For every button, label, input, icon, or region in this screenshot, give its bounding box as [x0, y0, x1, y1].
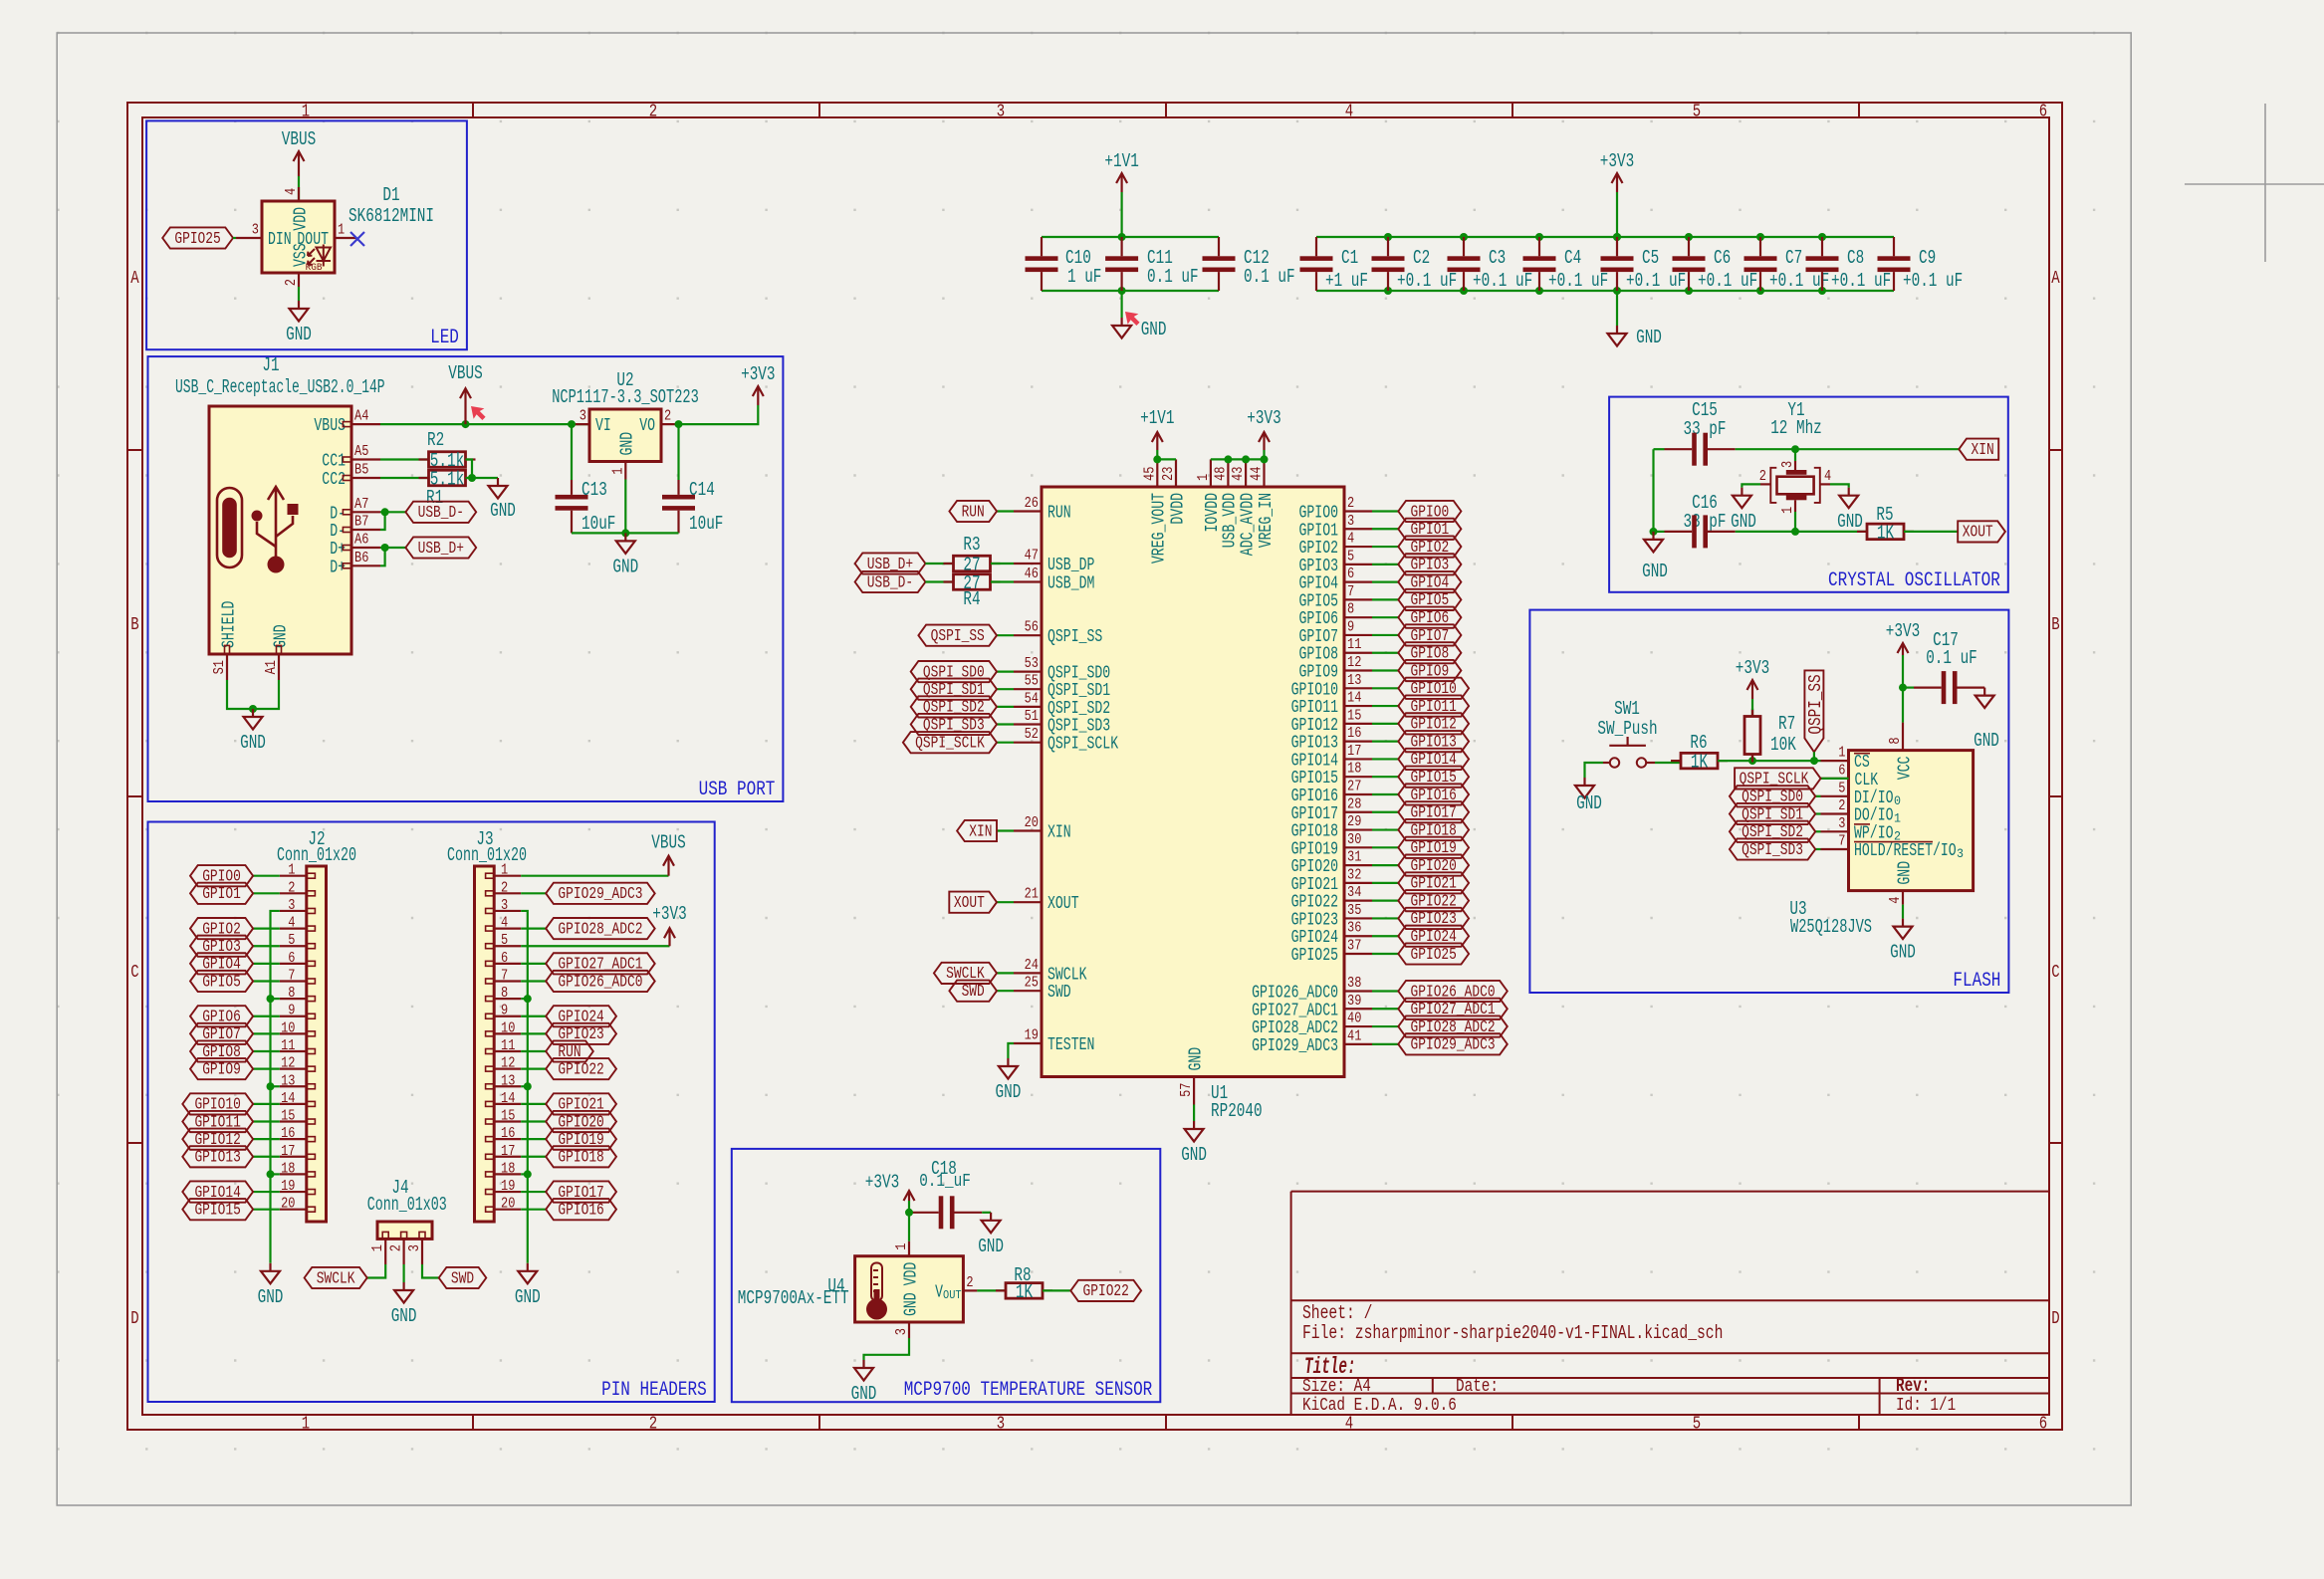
svg-text:20: 20 — [501, 1196, 515, 1213]
svg-text:2: 2 — [649, 103, 657, 122]
svg-text:GND: GND — [1837, 511, 1863, 533]
svg-text:GPIO26_ADC0: GPIO26_ADC0 — [558, 973, 642, 992]
svg-text:4: 4 — [1345, 1415, 1353, 1435]
svg-text:Conn_01x03: Conn_01x03 — [367, 1194, 447, 1216]
svg-text:GND: GND — [240, 732, 266, 754]
svg-text:+3V3: +3V3 — [1600, 150, 1634, 172]
svg-text:10uF: 10uF — [689, 513, 723, 535]
svg-text:A5: A5 — [354, 443, 368, 460]
svg-text:GND: GND — [1895, 861, 1915, 885]
svg-text:12: 12 — [281, 1055, 295, 1072]
svg-text:QSPI_SS: QSPI_SS — [1047, 627, 1102, 647]
svg-text:1: 1 — [1195, 474, 1212, 481]
svg-text:56: 56 — [1025, 619, 1039, 636]
svg-text:C9: C9 — [1919, 247, 1936, 269]
svg-text:1: 1 — [1838, 745, 1845, 762]
svg-text:V: V — [935, 1282, 943, 1302]
svg-text:0: 0 — [1894, 793, 1901, 808]
svg-text:1: 1 — [893, 1243, 910, 1250]
svg-text:23: 23 — [1160, 467, 1177, 481]
svg-text:GND: GND — [286, 324, 312, 345]
svg-text:6: 6 — [1838, 762, 1845, 779]
svg-text:GPIO29_ADC3: GPIO29_ADC3 — [1252, 1036, 1338, 1056]
svg-text:3: 3 — [1779, 461, 1796, 468]
svg-text:2: 2 — [501, 879, 508, 896]
svg-text:QSPI_SD3: QSPI_SD3 — [1742, 841, 1803, 860]
svg-text:10K: 10K — [1770, 734, 1796, 756]
svg-text:SK6812MINI: SK6812MINI — [349, 205, 434, 227]
svg-text:C2: C2 — [1413, 247, 1430, 269]
svg-text:C: C — [130, 963, 139, 983]
svg-text:SHIELD: SHIELD — [219, 601, 239, 648]
svg-text:6: 6 — [2039, 1415, 2047, 1435]
svg-text:7: 7 — [288, 967, 295, 984]
svg-text:6: 6 — [1347, 565, 1354, 582]
svg-text:C1: C1 — [1341, 247, 1358, 269]
svg-text:XOUT: XOUT — [1047, 894, 1079, 914]
svg-text:12: 12 — [501, 1055, 515, 1072]
svg-text:1: 1 — [1894, 811, 1901, 826]
svg-text:21: 21 — [1025, 886, 1039, 903]
svg-text:SWD: SWD — [451, 1269, 474, 1288]
svg-text:32: 32 — [1347, 866, 1361, 883]
svg-text:18: 18 — [1347, 761, 1361, 778]
svg-text:53: 53 — [1025, 655, 1039, 672]
svg-text:10uF: 10uF — [581, 513, 615, 535]
svg-text:HOLD/RESET/IO: HOLD/RESET/IO — [1854, 841, 1957, 861]
svg-text:15: 15 — [281, 1108, 295, 1125]
svg-text:RP2040: RP2040 — [1211, 1100, 1263, 1122]
svg-text:GND: GND — [490, 500, 516, 522]
svg-text:GND: GND — [978, 1236, 1004, 1257]
svg-text:15: 15 — [501, 1108, 515, 1125]
svg-text:A4: A4 — [354, 408, 368, 425]
svg-text:12: 12 — [1347, 654, 1361, 671]
svg-text:38: 38 — [1347, 975, 1361, 992]
svg-text:9: 9 — [1347, 618, 1354, 635]
svg-text:+3V3: +3V3 — [1736, 657, 1769, 679]
svg-text:11: 11 — [1347, 636, 1361, 653]
svg-text:RGB: RGB — [306, 263, 323, 274]
svg-text:GPIO25: GPIO25 — [1411, 946, 1457, 965]
svg-text:R4: R4 — [963, 588, 980, 610]
svg-text:4: 4 — [1345, 103, 1353, 122]
svg-text:GPIO9: GPIO9 — [202, 1060, 241, 1079]
svg-text:J1: J1 — [262, 354, 279, 376]
svg-text:R2: R2 — [427, 429, 444, 451]
svg-text:25: 25 — [1025, 975, 1039, 992]
svg-text:41: 41 — [1347, 1027, 1361, 1044]
svg-text:QSPI_SCLK: QSPI_SCLK — [1047, 735, 1118, 755]
svg-text:+0.1 uF: +0.1 uF — [1903, 270, 1963, 292]
svg-text:46: 46 — [1025, 565, 1039, 582]
svg-text:PIN HEADERS: PIN HEADERS — [601, 1379, 707, 1402]
svg-text:3: 3 — [893, 1328, 910, 1335]
svg-text:GND: GND — [1642, 561, 1668, 582]
svg-text:36: 36 — [1347, 920, 1361, 937]
svg-text:3: 3 — [580, 408, 586, 425]
svg-text:A: A — [2051, 269, 2060, 289]
svg-text:R7: R7 — [1778, 713, 1795, 735]
svg-text:MCP9700 TEMPERATURE SENSOR: MCP9700 TEMPERATURE SENSOR — [904, 1379, 1153, 1402]
svg-text:+3V3: +3V3 — [865, 1172, 899, 1194]
svg-text:+1 uF: +1 uF — [1325, 270, 1368, 292]
svg-text:17: 17 — [1347, 743, 1361, 760]
svg-text:GND: GND — [1890, 942, 1916, 964]
svg-text:29: 29 — [1347, 813, 1361, 830]
svg-text:C3: C3 — [1489, 247, 1506, 269]
svg-text:GPIO16: GPIO16 — [558, 1201, 603, 1220]
svg-text:Rev:: Rev: — [1896, 1375, 1930, 1397]
svg-text:5: 5 — [288, 932, 295, 949]
svg-text:VCC: VCC — [1895, 756, 1915, 780]
svg-text:6: 6 — [2039, 103, 2047, 122]
svg-text:1K: 1K — [1877, 522, 1895, 544]
svg-text:2: 2 — [664, 408, 671, 425]
svg-text:SWD: SWD — [1047, 983, 1071, 1003]
svg-text:1: 1 — [288, 862, 295, 879]
svg-text:3: 3 — [1347, 513, 1354, 530]
svg-text:8: 8 — [1347, 601, 1354, 618]
svg-text:CC1: CC1 — [322, 452, 346, 472]
svg-text:9: 9 — [288, 1003, 295, 1019]
svg-text:51: 51 — [1025, 708, 1039, 725]
svg-text:VO: VO — [639, 416, 655, 436]
svg-text:5: 5 — [1838, 780, 1845, 796]
svg-text:2: 2 — [966, 1274, 973, 1291]
svg-text:57: 57 — [1178, 1083, 1195, 1097]
svg-text:GND: GND — [996, 1081, 1022, 1103]
svg-text:B5: B5 — [354, 462, 368, 479]
svg-text:13: 13 — [501, 1072, 515, 1089]
svg-text:R3: R3 — [963, 534, 980, 556]
svg-text:VDD: VDD — [291, 207, 311, 231]
svg-text:4: 4 — [283, 188, 300, 195]
svg-text:8: 8 — [1887, 737, 1904, 744]
svg-text:VBUS: VBUS — [651, 832, 685, 854]
svg-text:26: 26 — [1025, 495, 1039, 512]
svg-text:43: 43 — [1230, 467, 1247, 481]
svg-text:11: 11 — [501, 1037, 515, 1054]
svg-text:B: B — [130, 615, 139, 635]
svg-text:+3V3: +3V3 — [652, 903, 686, 925]
svg-text:39: 39 — [1347, 993, 1361, 1010]
svg-text:GND: GND — [1181, 1144, 1207, 1166]
svg-text:+0.1 uF: +0.1 uF — [1473, 270, 1532, 292]
svg-text:15: 15 — [1347, 707, 1361, 724]
svg-text:QSPI_SCLK: QSPI_SCLK — [915, 735, 985, 754]
svg-text:14: 14 — [1347, 690, 1361, 707]
svg-text:1: 1 — [369, 1244, 386, 1251]
svg-text:14: 14 — [281, 1090, 295, 1107]
svg-text:9: 9 — [501, 1003, 508, 1019]
svg-text:3: 3 — [501, 897, 508, 914]
svg-text:C: C — [2051, 963, 2060, 983]
svg-text:GPIO29_ADC3: GPIO29_ADC3 — [1411, 1036, 1496, 1055]
svg-text:GPIO25: GPIO25 — [174, 230, 220, 249]
svg-text:A6: A6 — [354, 532, 368, 549]
svg-text:GND: GND — [901, 1292, 921, 1316]
svg-text:3: 3 — [1838, 815, 1845, 832]
svg-text:LED: LED — [430, 327, 459, 349]
svg-text:4: 4 — [288, 915, 295, 932]
svg-text:18: 18 — [501, 1160, 515, 1177]
svg-text:XIN: XIN — [1972, 441, 1994, 460]
svg-text:VREG_IN: VREG_IN — [1257, 493, 1277, 548]
svg-text:30: 30 — [1347, 831, 1361, 848]
svg-text:5: 5 — [1347, 548, 1354, 564]
svg-text:D: D — [130, 1309, 138, 1329]
svg-text:GND: GND — [1731, 511, 1756, 533]
svg-text:NCP1117-3.3_SOT223: NCP1117-3.3_SOT223 — [552, 386, 699, 408]
svg-text:GPIO29_ADC3: GPIO29_ADC3 — [558, 885, 642, 904]
svg-text:28: 28 — [1347, 795, 1361, 812]
svg-text:5: 5 — [501, 932, 508, 949]
svg-text:Sheet: /: Sheet: / — [1302, 1302, 1372, 1324]
svg-text:GND: GND — [271, 624, 291, 648]
svg-text:DVDD: DVDD — [1168, 493, 1188, 525]
svg-text:GND: GND — [618, 432, 638, 456]
svg-text:54: 54 — [1025, 690, 1039, 707]
svg-text:13: 13 — [1347, 672, 1361, 689]
svg-text:GND: GND — [1636, 327, 1662, 348]
svg-text:55: 55 — [1025, 673, 1039, 690]
svg-text:XIN: XIN — [969, 822, 992, 841]
svg-text:8: 8 — [501, 985, 508, 1002]
svg-text:44: 44 — [1249, 467, 1266, 481]
svg-text:5: 5 — [1693, 103, 1701, 122]
svg-text:SWCLK: SWCLK — [317, 1269, 355, 1288]
svg-text:Date:: Date: — [1456, 1377, 1499, 1397]
svg-text:16: 16 — [1347, 725, 1361, 742]
svg-text:C5: C5 — [1642, 247, 1659, 269]
svg-text:GND: GND — [612, 556, 638, 577]
svg-text:VI: VI — [595, 416, 611, 436]
svg-text:VREG_VOUT: VREG_VOUT — [1150, 493, 1170, 564]
svg-text:USB_D-: USB_D- — [867, 573, 913, 592]
svg-text:2: 2 — [1759, 468, 1766, 485]
svg-text:1: 1 — [302, 103, 310, 122]
svg-text:14: 14 — [501, 1090, 515, 1107]
svg-text:10: 10 — [501, 1019, 515, 1036]
svg-text:USB_D+: USB_D+ — [418, 540, 464, 559]
svg-text:S1: S1 — [211, 660, 228, 674]
svg-text:CC2: CC2 — [322, 470, 346, 490]
svg-text:20: 20 — [281, 1196, 295, 1213]
svg-text:C6: C6 — [1714, 247, 1731, 269]
svg-text:7: 7 — [501, 967, 508, 984]
svg-text:2: 2 — [288, 879, 295, 896]
svg-text:GND: GND — [1141, 319, 1167, 340]
svg-text:13: 13 — [281, 1072, 295, 1089]
svg-text:27: 27 — [1347, 778, 1361, 794]
svg-text:VBUS: VBUS — [448, 362, 482, 384]
svg-text:OUT: OUT — [943, 1288, 962, 1302]
svg-text:C8: C8 — [1847, 247, 1864, 269]
svg-text:GPIO22: GPIO22 — [1083, 1282, 1129, 1301]
svg-text:B7: B7 — [354, 514, 368, 531]
svg-text:B: B — [2051, 615, 2060, 635]
svg-text:DIN: DIN — [268, 230, 292, 250]
svg-text:1: 1 — [338, 222, 345, 239]
svg-text:B6: B6 — [354, 550, 368, 566]
svg-text:GPIO1: GPIO1 — [202, 885, 241, 904]
svg-text:W25Q128JVS: W25Q128JVS — [1790, 916, 1872, 938]
svg-text:48: 48 — [1212, 467, 1229, 481]
svg-text:SW1: SW1 — [1614, 698, 1640, 720]
svg-text:SWD: SWD — [962, 983, 985, 1002]
svg-text:GPIO15: GPIO15 — [194, 1201, 240, 1220]
svg-text:19: 19 — [281, 1178, 295, 1195]
svg-text:7: 7 — [1838, 833, 1845, 850]
svg-text:1: 1 — [501, 862, 508, 879]
svg-text:GPIO22: GPIO22 — [558, 1060, 603, 1079]
svg-text:10: 10 — [281, 1019, 295, 1036]
svg-text:TESTEN: TESTEN — [1047, 1035, 1094, 1055]
svg-text:XOUT: XOUT — [954, 894, 985, 913]
svg-text:12 Mhz: 12 Mhz — [1770, 417, 1822, 439]
svg-text:XOUT: XOUT — [1963, 524, 1993, 543]
svg-text:VBUS: VBUS — [314, 416, 346, 436]
svg-text:8: 8 — [288, 985, 295, 1002]
svg-text:37: 37 — [1347, 938, 1361, 955]
svg-text:GND: GND — [1974, 730, 1999, 752]
svg-text:1: 1 — [609, 468, 626, 475]
svg-text:QSPI_SD3: QSPI_SD3 — [1047, 717, 1110, 737]
svg-text:3: 3 — [997, 103, 1005, 122]
svg-text:D: D — [2051, 1309, 2059, 1329]
svg-text:USB PORT: USB PORT — [699, 779, 776, 801]
svg-text:VDD: VDD — [901, 1262, 921, 1286]
svg-text:D1: D1 — [382, 184, 399, 206]
svg-text:A: A — [130, 269, 139, 289]
svg-text:2: 2 — [283, 279, 300, 286]
svg-text:XIN: XIN — [1047, 823, 1071, 843]
svg-text:USB_DP: USB_DP — [1047, 556, 1094, 575]
svg-text:GND: GND — [1186, 1047, 1206, 1071]
svg-text:C7: C7 — [1785, 247, 1802, 269]
svg-text:C4: C4 — [1564, 247, 1581, 269]
svg-text:20: 20 — [1025, 814, 1039, 831]
svg-text:1K: 1K — [1691, 752, 1709, 774]
svg-text:GPIO28_ADC2: GPIO28_ADC2 — [558, 920, 642, 939]
svg-text:+0.1 uF: +0.1 uF — [1548, 270, 1608, 292]
svg-text:SW_Push: SW_Push — [1597, 718, 1657, 740]
svg-text:ADC_AVDD: ADC_AVDD — [1238, 493, 1258, 556]
svg-text:GND: GND — [851, 1383, 877, 1405]
svg-text:17: 17 — [281, 1143, 295, 1160]
svg-text:GND: GND — [391, 1305, 417, 1327]
svg-text:0.1 uF: 0.1 uF — [1244, 266, 1295, 288]
svg-text:+0.1 uF: +0.1 uF — [1397, 270, 1457, 292]
svg-text:GND: GND — [515, 1286, 541, 1308]
svg-text:1 uF: 1 uF — [1067, 266, 1101, 288]
svg-text:4: 4 — [1347, 531, 1354, 548]
svg-text:RUN: RUN — [962, 503, 985, 522]
svg-text:+3V3: +3V3 — [1247, 407, 1280, 429]
svg-text:A7: A7 — [354, 496, 368, 513]
svg-text:3: 3 — [406, 1244, 423, 1251]
svg-text:7: 7 — [1347, 583, 1354, 600]
svg-text:QSPI_SD0: QSPI_SD0 — [923, 663, 985, 682]
svg-text:RUN: RUN — [1047, 504, 1071, 524]
svg-text:17: 17 — [501, 1143, 515, 1160]
svg-text:3: 3 — [288, 897, 295, 914]
svg-text:40: 40 — [1347, 1011, 1361, 1027]
svg-text:Conn_01x20: Conn_01x20 — [447, 844, 527, 866]
svg-text:3: 3 — [1957, 846, 1964, 861]
svg-text:+1V1: +1V1 — [1104, 150, 1138, 172]
svg-text:2: 2 — [649, 1415, 657, 1435]
svg-text:2: 2 — [1347, 495, 1354, 512]
svg-text:6: 6 — [501, 950, 508, 967]
svg-text:GPIO5: GPIO5 — [202, 973, 241, 992]
svg-text:+1V1: +1V1 — [1140, 407, 1174, 429]
svg-text:2: 2 — [388, 1244, 405, 1251]
svg-text:VBUS: VBUS — [282, 128, 316, 150]
svg-text:47: 47 — [1025, 548, 1039, 564]
svg-text:5: 5 — [1693, 1415, 1701, 1435]
svg-text:0.1_uF: 0.1_uF — [919, 1172, 971, 1192]
svg-text:16: 16 — [501, 1125, 515, 1142]
svg-text:+0.1 uF: +0.1 uF — [1698, 270, 1757, 292]
svg-text:+0.1 uF: +0.1 uF — [1769, 270, 1829, 292]
svg-text:11: 11 — [281, 1037, 295, 1054]
svg-text:CRYSTAL OSCILLATOR: CRYSTAL OSCILLATOR — [1828, 569, 2000, 592]
svg-text:FLASH: FLASH — [1953, 970, 2000, 993]
svg-text:4: 4 — [1887, 897, 1904, 904]
svg-text:2: 2 — [1838, 797, 1845, 814]
svg-text:GND: GND — [258, 1286, 284, 1308]
svg-text:35: 35 — [1347, 902, 1361, 919]
svg-text:+0.1 uF: +0.1 uF — [1831, 270, 1891, 292]
svg-text:USB_D-: USB_D- — [418, 504, 464, 523]
svg-text:0.1 uF: 0.1 uF — [1147, 266, 1199, 288]
svg-text:C13: C13 — [581, 479, 607, 501]
svg-text:19: 19 — [1025, 1027, 1039, 1044]
svg-text:4: 4 — [1824, 468, 1831, 485]
svg-text:6: 6 — [288, 950, 295, 967]
svg-text:45: 45 — [1141, 467, 1158, 481]
svg-text:+3V3: +3V3 — [741, 363, 775, 385]
svg-text:34: 34 — [1347, 884, 1361, 901]
svg-text:KiCad E.D.A. 9.0.6: KiCad E.D.A. 9.0.6 — [1302, 1396, 1457, 1416]
svg-text:24: 24 — [1025, 957, 1039, 974]
svg-text:+0.1 uF: +0.1 uF — [1626, 270, 1686, 292]
svg-text:3: 3 — [252, 222, 259, 239]
svg-text:Size: A4: Size: A4 — [1302, 1377, 1371, 1397]
svg-text:18: 18 — [281, 1160, 295, 1177]
svg-text:1: 1 — [302, 1415, 310, 1435]
svg-text:QSPI_SS: QSPI_SS — [931, 627, 985, 646]
svg-text:USB_DM: USB_DM — [1047, 574, 1094, 594]
svg-text:GPIO18: GPIO18 — [558, 1149, 603, 1168]
svg-text:GND: GND — [1576, 792, 1602, 814]
svg-text:GPIO25: GPIO25 — [1291, 946, 1338, 966]
svg-text:Id: 1/1: Id: 1/1 — [1896, 1396, 1956, 1416]
svg-text:USB_C_Receptacle_USB2.0_14P: USB_C_Receptacle_USB2.0_14P — [175, 376, 385, 398]
svg-text:16: 16 — [281, 1125, 295, 1142]
svg-text:0.1 uF: 0.1 uF — [1926, 647, 1977, 669]
svg-text:3: 3 — [997, 1415, 1005, 1435]
svg-text:A1: A1 — [263, 660, 280, 674]
svg-text:QSPI_SS: QSPI_SS — [1806, 674, 1826, 734]
svg-text:31: 31 — [1347, 849, 1361, 866]
svg-text:File: zsharpminor-sharpie2040-: File: zsharpminor-sharpie2040-v1-FINAL.k… — [1302, 1322, 1723, 1344]
svg-text:MCP9700Ax-ETT: MCP9700Ax-ETT — [738, 1287, 849, 1309]
svg-text:4: 4 — [501, 915, 508, 932]
svg-text:+3V3: +3V3 — [1886, 620, 1920, 642]
